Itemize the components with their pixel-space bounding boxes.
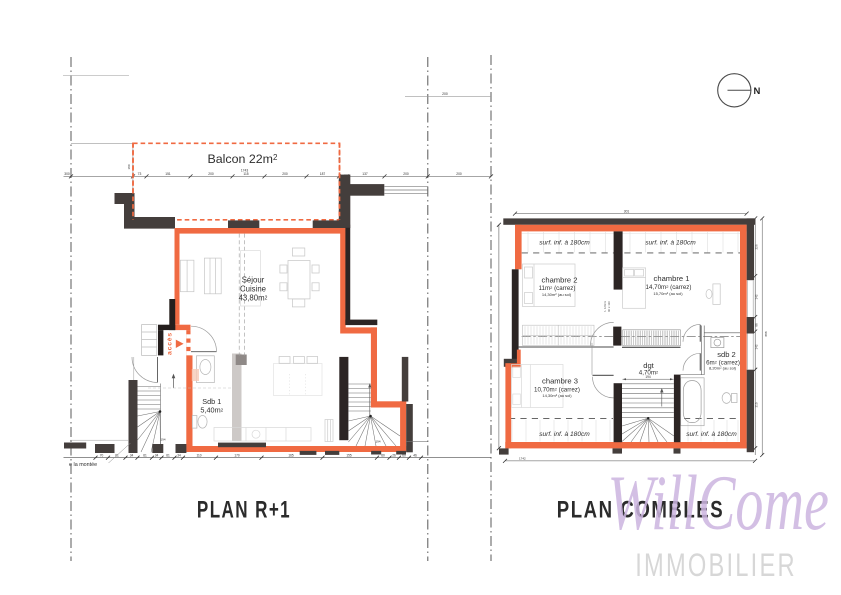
svg-text:310: 310 bbox=[754, 402, 758, 407]
svg-text:46: 46 bbox=[413, 454, 417, 458]
svg-text:34: 34 bbox=[130, 454, 134, 458]
svg-text:165: 165 bbox=[288, 454, 294, 458]
svg-text:300: 300 bbox=[64, 172, 70, 176]
svg-text:73: 73 bbox=[138, 172, 142, 176]
svg-text:Séjour: Séjour bbox=[242, 276, 265, 285]
svg-text:14,30m2 (au sol): 14,30m2 (au sol) bbox=[542, 393, 572, 398]
svg-text:surf. inf. à 180cm: surf. inf. à 180cm bbox=[539, 431, 590, 438]
svg-text:IMMOBILIER: IMMOBILIER bbox=[635, 548, 797, 583]
svg-text:Balcon 22m2: Balcon 22m2 bbox=[208, 152, 278, 166]
svg-text:surf. inf. à 180cm: surf. inf. à 180cm bbox=[645, 239, 696, 246]
svg-text:Cuisine: Cuisine bbox=[240, 285, 266, 294]
svg-text:115: 115 bbox=[243, 172, 248, 176]
svg-text:WillCome: WillCome bbox=[608, 459, 829, 546]
svg-text:8,20m2 (au sol): 8,20m2 (au sol) bbox=[709, 366, 737, 371]
svg-text:26: 26 bbox=[392, 454, 396, 458]
svg-text:61: 61 bbox=[143, 454, 147, 458]
svg-text:e la montée: e la montée bbox=[69, 462, 97, 468]
svg-text:34: 34 bbox=[155, 454, 159, 458]
svg-text:chambre 1: chambre 1 bbox=[654, 274, 690, 283]
svg-text:155: 155 bbox=[346, 454, 352, 458]
svg-text:1742: 1742 bbox=[519, 457, 526, 461]
svg-text:4,70m2: 4,70m2 bbox=[639, 369, 659, 376]
svg-text:15,70m2 (au sol): 15,70m2 (au sol) bbox=[653, 291, 683, 296]
svg-text:142: 142 bbox=[754, 344, 758, 349]
svg-text:170: 170 bbox=[234, 454, 240, 458]
svg-text:accès: accès bbox=[167, 332, 174, 355]
svg-text:194: 194 bbox=[161, 438, 166, 442]
svg-text:142: 142 bbox=[754, 294, 758, 299]
svg-text:226: 226 bbox=[754, 244, 758, 249]
svg-text:200: 200 bbox=[456, 172, 462, 176]
svg-text:43,80m2: 43,80m2 bbox=[239, 294, 268, 303]
svg-text:151: 151 bbox=[165, 172, 171, 176]
svg-text:200: 200 bbox=[282, 172, 288, 176]
svg-text:180: 180 bbox=[127, 164, 131, 169]
svg-text:200: 200 bbox=[208, 172, 214, 176]
svg-text:34: 34 bbox=[177, 454, 181, 458]
svg-text:PLAN R+1: PLAN R+1 bbox=[197, 497, 291, 524]
svg-text:5,40m2: 5,40m2 bbox=[200, 405, 223, 414]
svg-text:14,70m2 (carrez): 14,70m2 (carrez) bbox=[646, 284, 692, 291]
svg-text:60: 60 bbox=[402, 454, 406, 458]
svg-text:110: 110 bbox=[196, 454, 201, 458]
svg-text:chambre 2: chambre 2 bbox=[542, 275, 578, 284]
svg-text:N: N bbox=[754, 86, 761, 97]
svg-text:88: 88 bbox=[754, 323, 758, 327]
svg-text:surf. inf. à 180cm: surf. inf. à 180cm bbox=[539, 239, 590, 246]
svg-text:60: 60 bbox=[381, 454, 385, 458]
svg-text:200: 200 bbox=[442, 92, 448, 96]
svg-text:70: 70 bbox=[100, 454, 104, 458]
svg-text:90 x 136: 90 x 136 bbox=[607, 301, 611, 312]
svg-text:301: 301 bbox=[624, 209, 630, 213]
svg-text:61: 61 bbox=[166, 454, 170, 458]
svg-text:1743: 1743 bbox=[241, 169, 249, 173]
svg-text:surf. inf. à 180cm: surf. inf. à 180cm bbox=[686, 431, 737, 438]
svg-text:194: 194 bbox=[376, 439, 381, 443]
svg-text:187: 187 bbox=[320, 172, 326, 176]
svg-text:sdb 2: sdb 2 bbox=[717, 350, 736, 359]
svg-text:137: 137 bbox=[362, 172, 368, 176]
svg-text:14,30m2 (au sol): 14,30m2 (au sol) bbox=[542, 292, 572, 297]
svg-text:chambre 3: chambre 3 bbox=[542, 377, 578, 386]
svg-text:888: 888 bbox=[764, 331, 768, 336]
svg-text:200: 200 bbox=[403, 172, 409, 176]
